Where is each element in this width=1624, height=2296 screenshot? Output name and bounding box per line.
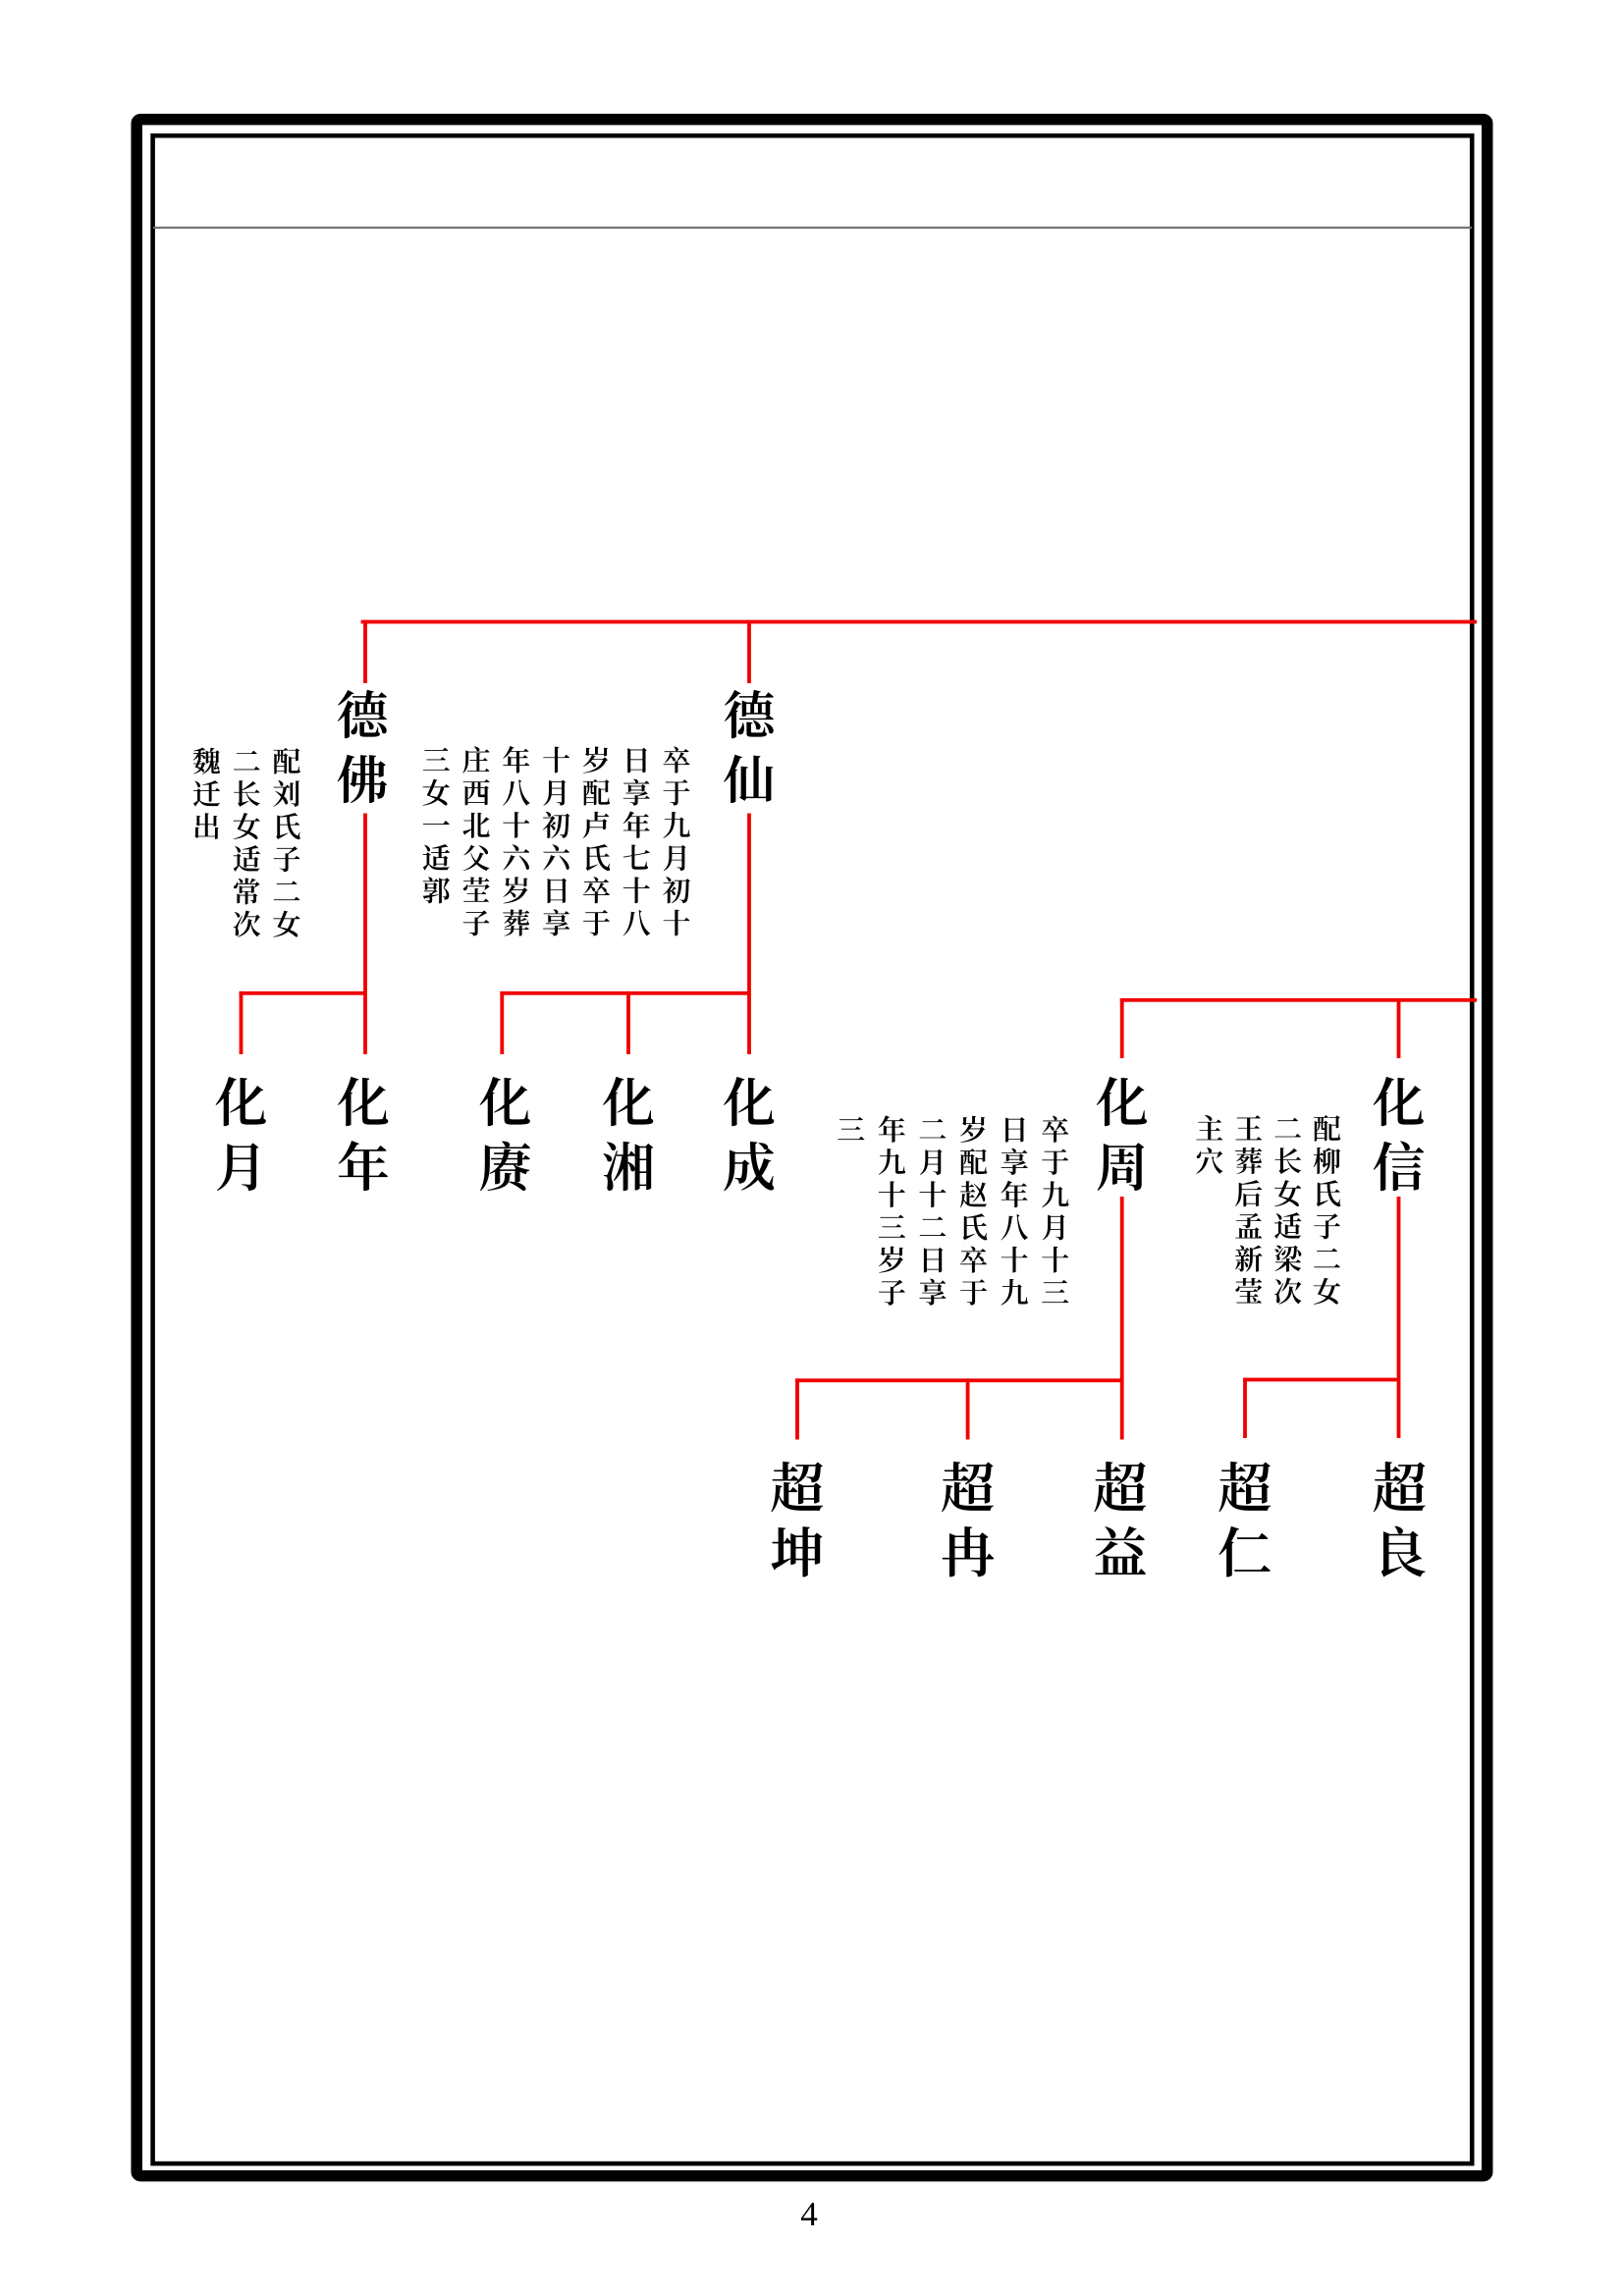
svg-text:4: 4 — [800, 2195, 818, 2233]
